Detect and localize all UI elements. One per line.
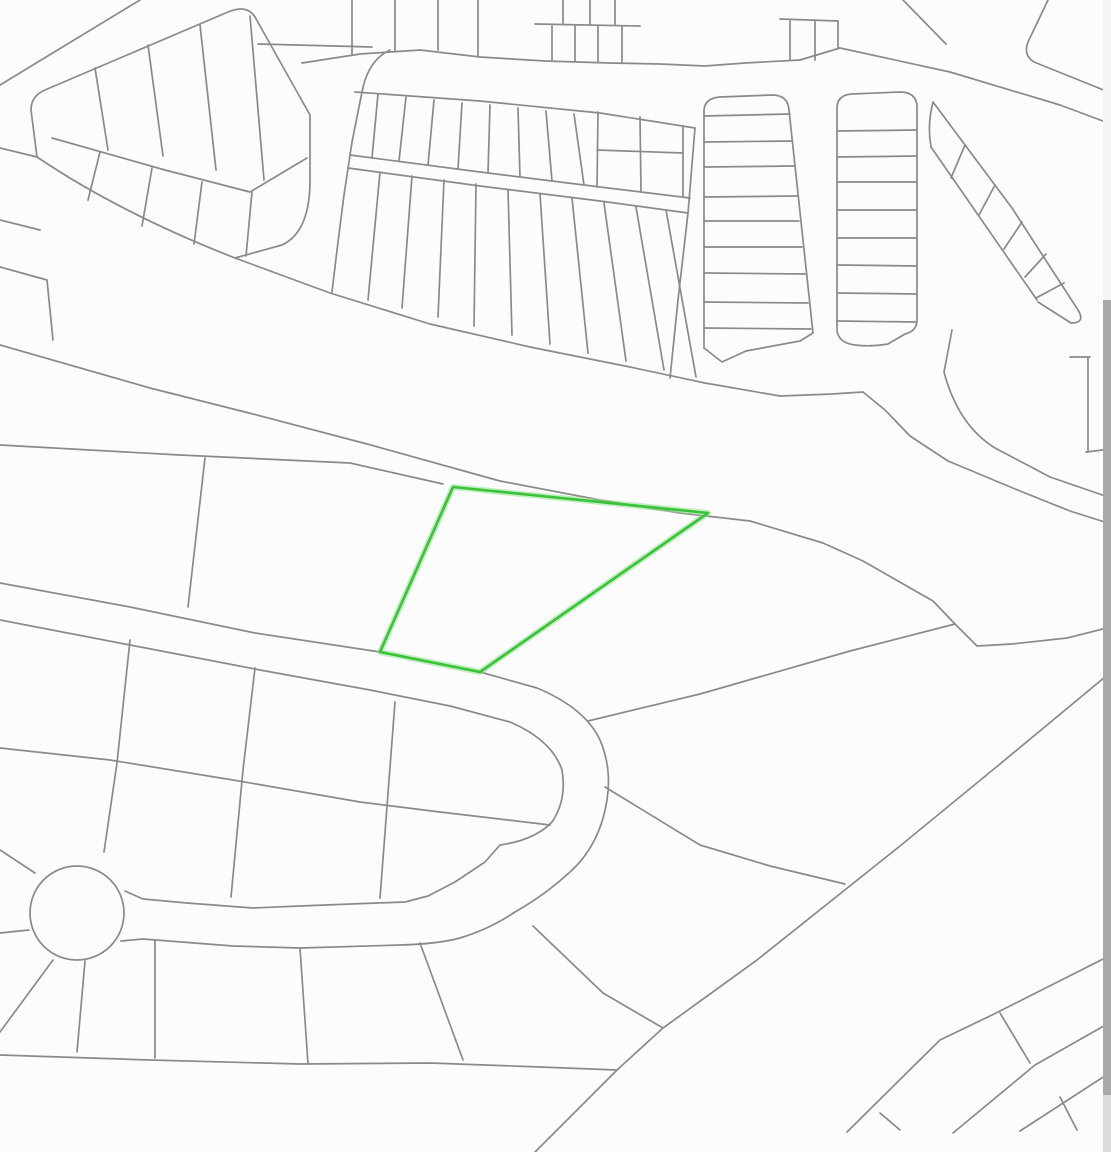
parcel-row-north-line bbox=[0, 445, 443, 484]
left-edge-stub-line bbox=[0, 220, 40, 230]
se-corner-band bbox=[847, 955, 1111, 1133]
island-mid-line bbox=[0, 748, 550, 825]
parcel-row-divider bbox=[188, 458, 205, 607]
loop-road-inner-edge bbox=[0, 620, 563, 908]
parcel-map-canvas[interactable] bbox=[0, 0, 1111, 1152]
road-island-wedge bbox=[0, 267, 53, 340]
ladder-strip2-rungs bbox=[837, 130, 917, 322]
lower-band-lot-dividers bbox=[368, 172, 696, 377]
ladder-strip1-rungs bbox=[704, 114, 811, 329]
ne-road-lower-edge bbox=[840, 48, 1111, 124]
vertical-scrollbar-thumb[interactable] bbox=[1103, 300, 1111, 1095]
topright-miniblock-lots bbox=[780, 19, 838, 60]
parcel-boundary-east bbox=[588, 624, 955, 721]
selected-parcel-halo bbox=[380, 487, 708, 672]
plat-linework bbox=[0, 0, 1111, 1152]
culdesac-bulb bbox=[30, 866, 124, 960]
main-road-north-edge bbox=[0, 148, 1111, 524]
nw-diagonal-road-line bbox=[0, 0, 140, 85]
mid-south-boundary bbox=[605, 787, 845, 884]
se-divider bbox=[533, 926, 663, 1028]
long-diagonal-boundary bbox=[535, 672, 1111, 1152]
ladder-strip1-outline bbox=[704, 95, 813, 362]
topleft-block-dividers bbox=[88, 16, 264, 256]
ne-lot-strip-rungs bbox=[951, 145, 1064, 298]
ne-road-top-stub bbox=[903, 0, 946, 44]
topleft-block-midline bbox=[52, 138, 307, 192]
top-miniblock-lots bbox=[535, 0, 640, 62]
east-road-curve bbox=[944, 330, 1111, 498]
vertical-scrollbar-lower-segment bbox=[1103, 1095, 1111, 1152]
top-road-upper-edge bbox=[302, 48, 840, 66]
selected-parcel-outline[interactable] bbox=[380, 487, 708, 672]
ne-lot-strip-outline bbox=[929, 102, 1080, 323]
ne-road-upper-edge bbox=[1026, 0, 1111, 93]
mid-road-lower-edge bbox=[348, 168, 688, 213]
island-lot-dividers bbox=[104, 640, 395, 898]
road-crossing-line bbox=[258, 44, 372, 47]
central-block-left-edge bbox=[332, 50, 390, 292]
topleft-block-outline bbox=[31, 9, 310, 258]
